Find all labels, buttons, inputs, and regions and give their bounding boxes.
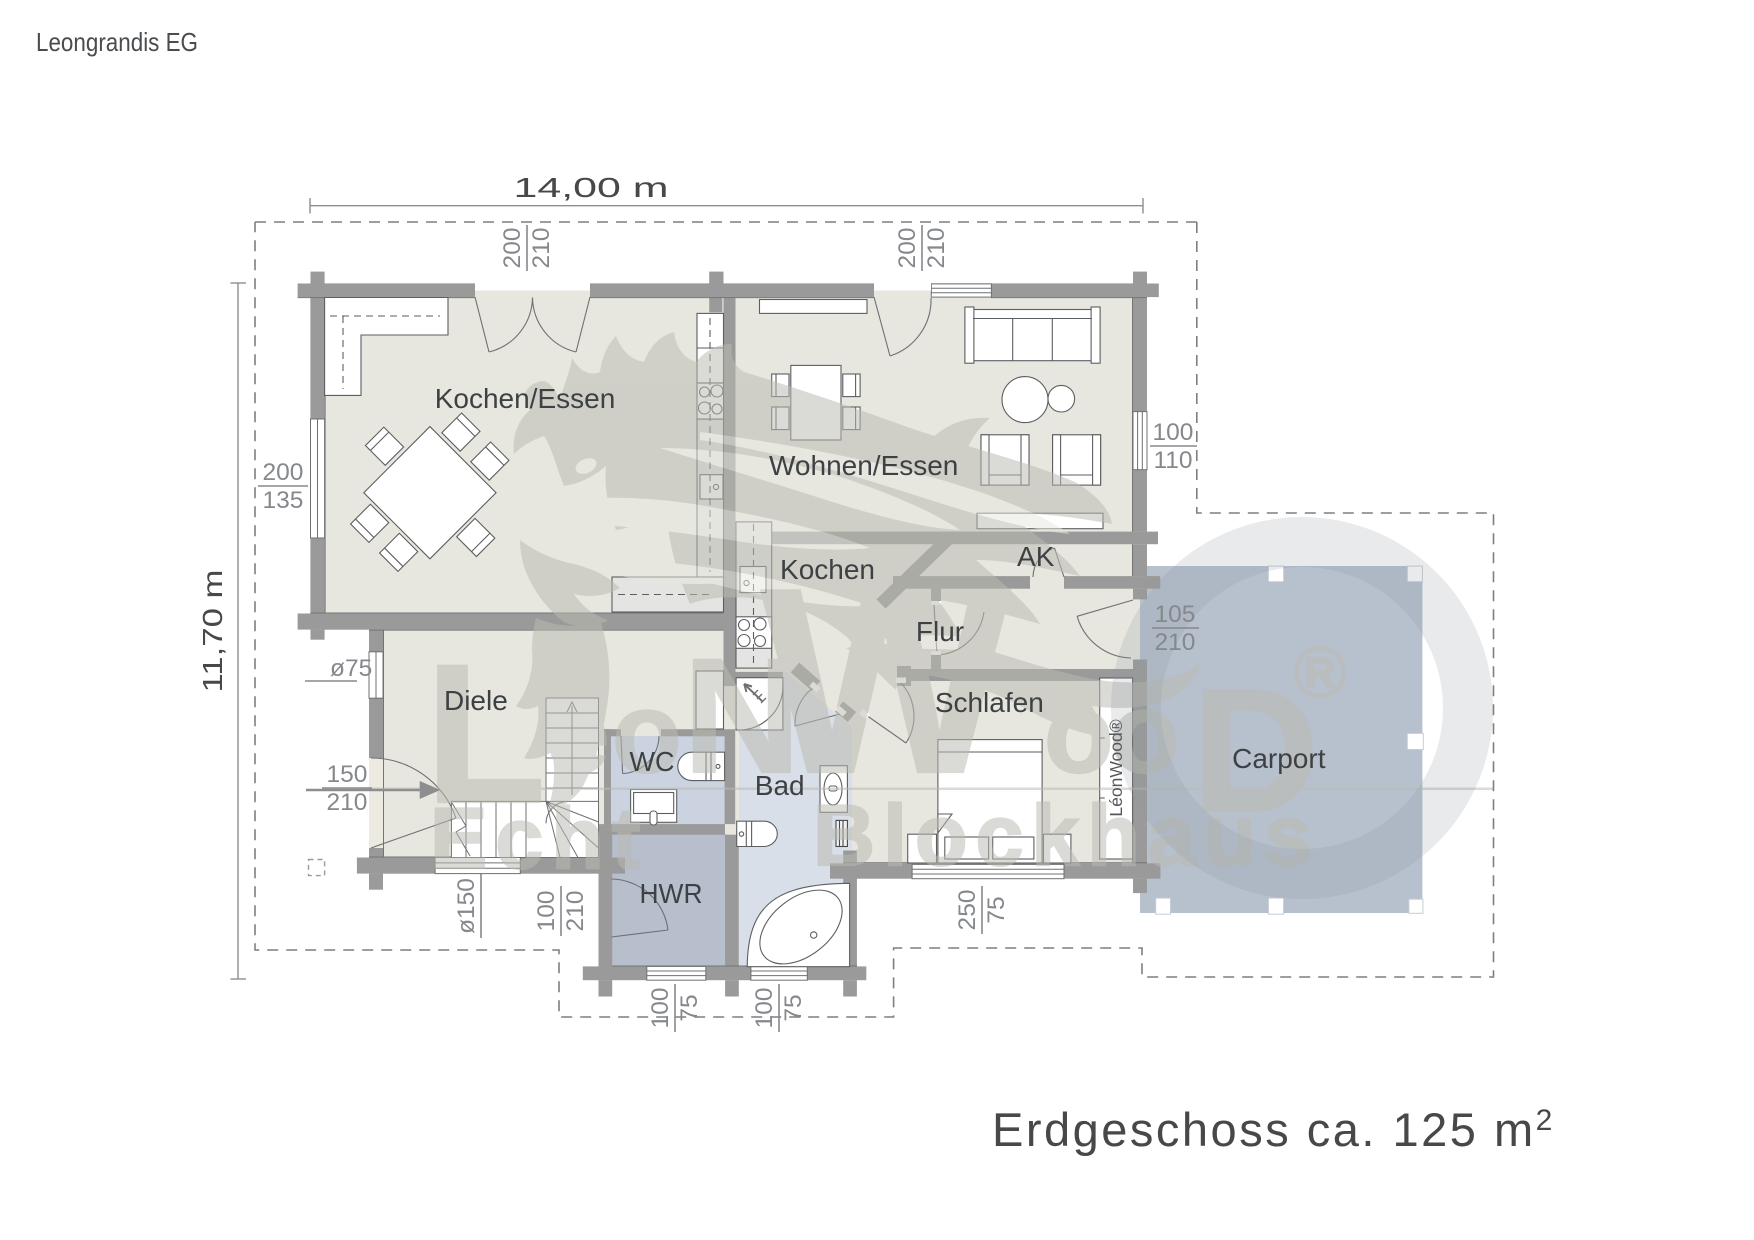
svg-text:Bad: Bad [755, 770, 805, 801]
svg-text:150: 150 [327, 761, 368, 788]
svg-text:Echt: Echt [430, 791, 648, 887]
svg-text:11,70 m: 11,70 m [197, 570, 228, 693]
svg-text:75: 75 [983, 896, 1010, 923]
svg-text:210: 210 [1155, 629, 1196, 656]
svg-text:100: 100 [647, 988, 674, 1029]
svg-text:Diele: Diele [444, 685, 508, 716]
svg-text:HWR: HWR [640, 878, 703, 909]
svg-text:200: 200 [263, 459, 304, 486]
svg-text:Schlafen: Schlafen [935, 687, 1044, 718]
svg-text:100: 100 [1153, 419, 1194, 446]
svg-text:110: 110 [1153, 447, 1192, 474]
svg-text:R: R [1305, 649, 1335, 696]
svg-text:Kochen: Kochen [780, 554, 875, 585]
svg-text:é: é [546, 670, 609, 797]
svg-text:LéonWood®: LéonWood® [1106, 719, 1126, 816]
svg-text:210: 210 [327, 789, 368, 816]
svg-text:ø150: ø150 [453, 878, 480, 934]
svg-text:Carport: Carport [1232, 743, 1326, 774]
svg-text:135: 135 [263, 487, 304, 514]
svg-text:100: 100 [533, 891, 560, 932]
svg-text:210: 210 [528, 228, 555, 269]
svg-text:o: o [1044, 670, 1114, 797]
svg-text:ø75: ø75 [330, 655, 372, 682]
svg-text:75: 75 [676, 994, 703, 1021]
svg-text:200: 200 [894, 228, 921, 269]
svg-text:Flur: Flur [916, 616, 964, 647]
svg-text:75: 75 [780, 994, 807, 1021]
svg-text:Kochen/Essen: Kochen/Essen [435, 383, 616, 414]
svg-text:Wohnen/Essen: Wohnen/Essen [769, 450, 958, 481]
svg-text:Erdgeschoss ca. 125 m2: Erdgeschoss ca. 125 m2 [992, 1103, 1555, 1156]
svg-text:WC: WC [630, 746, 675, 777]
svg-text:210: 210 [562, 891, 589, 932]
svg-text:200: 200 [499, 228, 526, 269]
svg-text:AK: AK [1017, 541, 1055, 572]
svg-text:105: 105 [1155, 601, 1196, 628]
svg-text:14,00 m: 14,00 m [514, 172, 669, 203]
svg-text:210: 210 [923, 228, 950, 269]
svg-text:Leongrandis EG: Leongrandis EG [36, 27, 198, 57]
svg-text:o: o [612, 670, 682, 797]
svg-text:100: 100 [751, 988, 778, 1029]
svg-text:250: 250 [954, 890, 981, 931]
